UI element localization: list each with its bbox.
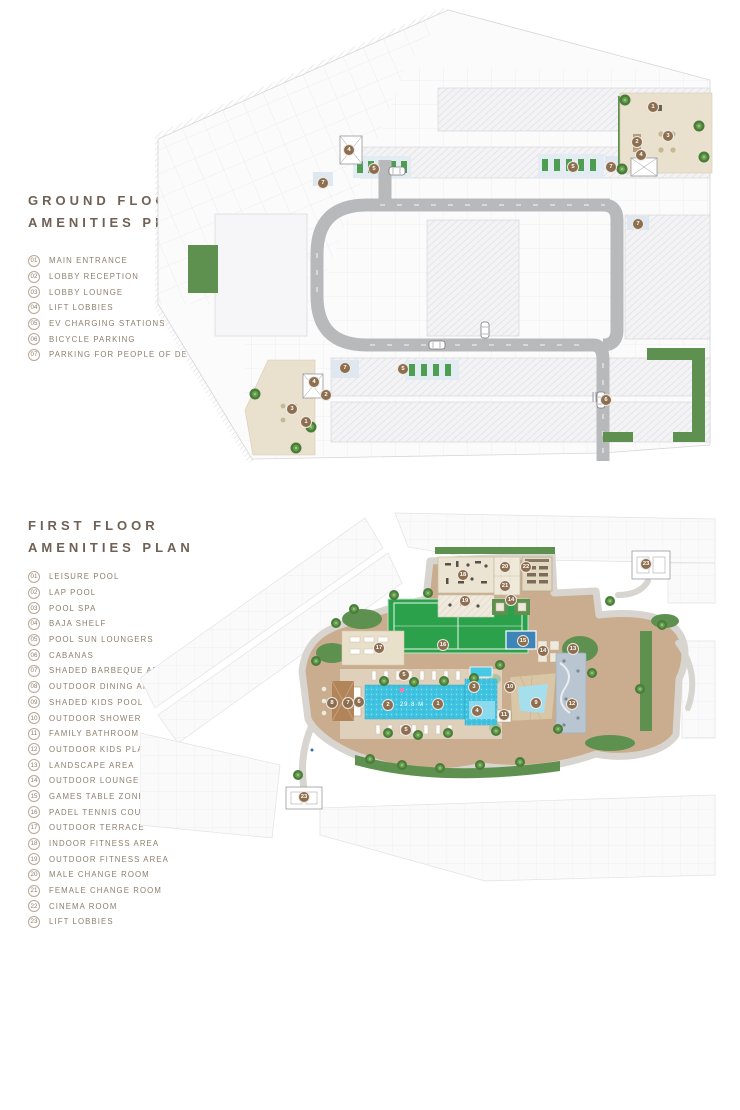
plan-marker-4: 4 [471,705,483,717]
plan-marker-1: 1 [432,698,444,710]
plan-marker-3: 3 [468,681,480,693]
plan-marker-6: 6 [353,696,365,708]
plan-marker-20: 20 [499,561,511,573]
legend-number-badge: 05 [28,318,40,330]
legend-label: BAJA SHELF [49,619,106,628]
plan-marker-10: 10 [504,681,516,693]
plan-marker-15: 15 [517,635,529,647]
legend-number-badge: 22 [28,900,40,912]
legend-label: LEISURE POOL [49,572,119,581]
legend-number-badge: 06 [28,333,40,345]
plan-marker-5: 5 [397,363,409,375]
plan-marker-23: 23 [640,558,652,570]
plan-marker-2: 2 [631,136,643,148]
plan-marker-5: 5 [567,161,579,173]
legend-number-badge: 07 [28,349,40,361]
legend-number-badge: 13 [28,759,40,771]
legend-number-badge: 16 [28,806,40,818]
plan-marker-11: 11 [498,709,510,721]
legend-number-badge: 03 [28,286,40,298]
plan-marker-3: 3 [662,130,674,142]
legend-label: PADEL TENNIS COURT [49,808,154,817]
legend-number-badge: 21 [28,885,40,897]
plan-marker-5: 5 [400,724,412,736]
plan-marker-7: 7 [317,177,329,189]
legend-label: POOL SUN LOUNGERS [49,635,154,644]
legend-label: CINEMA ROOM [49,902,117,911]
plan-marker-22: 22 [520,561,532,573]
plan-marker-4: 4 [308,376,320,388]
legend-number-badge: 10 [28,712,40,724]
plan-marker-7: 7 [342,697,354,709]
plan-marker-6: 6 [600,394,612,406]
legend-label: LAP POOL [49,588,96,597]
plan-marker-14: 14 [537,645,549,657]
plan-marker-2: 2 [382,699,394,711]
legend-number-badge: 04 [28,618,40,630]
legend-number-badge: 04 [28,302,40,314]
legend-number-badge: 19 [28,853,40,865]
legend-number-badge: 12 [28,743,40,755]
legend-label: OUTDOOR TERRACE [49,823,145,832]
legend-number-badge: 07 [28,665,40,677]
legend-item: 23LIFT LOBBIES [28,914,178,930]
plan-marker-4: 4 [635,149,647,161]
legend-label: SHADED KIDS POOL [49,698,143,707]
legend-number-badge: 18 [28,838,40,850]
plan-marker-7: 7 [339,362,351,374]
legend-label: LANDSCAPE AREA [49,761,135,770]
plan-marker-4: 4 [343,144,355,156]
plan-marker-7: 7 [605,161,617,173]
legend-label: POOL SPA [49,604,96,613]
plan-marker-2: 2 [320,389,332,401]
plan-marker-1: 1 [647,101,659,113]
legend-number-badge: 02 [28,587,40,599]
legend-label: BICYCLE PARKING [49,335,136,344]
legend-number-badge: 11 [28,728,40,740]
legend-number-badge: 08 [28,681,40,693]
brochure-page: GROUND FLOOR AMENITIES PLAN 01MAIN ENTRA… [0,0,740,1110]
plan-marker-7: 7 [632,218,644,230]
legend-label: MALE CHANGE ROOM [49,870,150,879]
first-floor-markers: 1716181920212223231415141355213467891011… [140,503,720,903]
plan-marker-5: 5 [368,163,380,175]
legend-label: LIFT LOBBIES [49,303,114,312]
plan-marker-13: 13 [567,643,579,655]
legend-number-badge: 03 [28,602,40,614]
plan-marker-23: 23 [298,791,310,803]
legend-number-badge: 14 [28,775,40,787]
ground-floor-markers: 74557123476754231 [155,8,715,463]
plan-marker-12: 12 [566,698,578,710]
legend-label: LIFT LOBBIES [49,917,114,926]
legend-label: FAMILY BATHROOM [49,729,139,738]
plan-marker-19: 19 [459,595,471,607]
legend-number-badge: 17 [28,822,40,834]
legend-number-badge: 09 [28,696,40,708]
ground-floor-plan-area: 74557123476754231 [155,8,715,463]
plan-marker-5: 5 [398,669,410,681]
legend-number-badge: 06 [28,649,40,661]
legend-number-badge: 05 [28,634,40,646]
legend-label: CABANAS [49,651,94,660]
plan-marker-17: 17 [373,642,385,654]
plan-marker-9: 9 [530,697,542,709]
legend-number-badge: 23 [28,916,40,928]
plan-marker-8: 8 [326,697,338,709]
plan-marker-21: 21 [499,580,511,592]
legend-number-badge: 02 [28,271,40,283]
legend-number-badge: 15 [28,790,40,802]
plan-marker-1: 1 [300,416,312,428]
legend-label: GAMES TABLE ZONE [49,792,145,801]
legend-number-badge: 20 [28,869,40,881]
plan-marker-18: 18 [457,569,469,581]
plan-marker-3: 3 [286,403,298,415]
legend-label: LOBBY RECEPTION [49,272,139,281]
legend-number-badge: 01 [28,571,40,583]
plan-marker-16: 16 [437,639,449,651]
legend-label: EV CHARGING STATIONS [49,319,166,328]
legend-label: MAIN ENTRANCE [49,256,128,265]
legend-number-badge: 01 [28,255,40,267]
legend-label: LOBBY LOUNGE [49,288,123,297]
first-floor-plan-area: 29.8 M [140,503,720,903]
legend-label: OUTDOOR SHOWER [49,714,142,723]
plan-marker-14: 14 [505,594,517,606]
